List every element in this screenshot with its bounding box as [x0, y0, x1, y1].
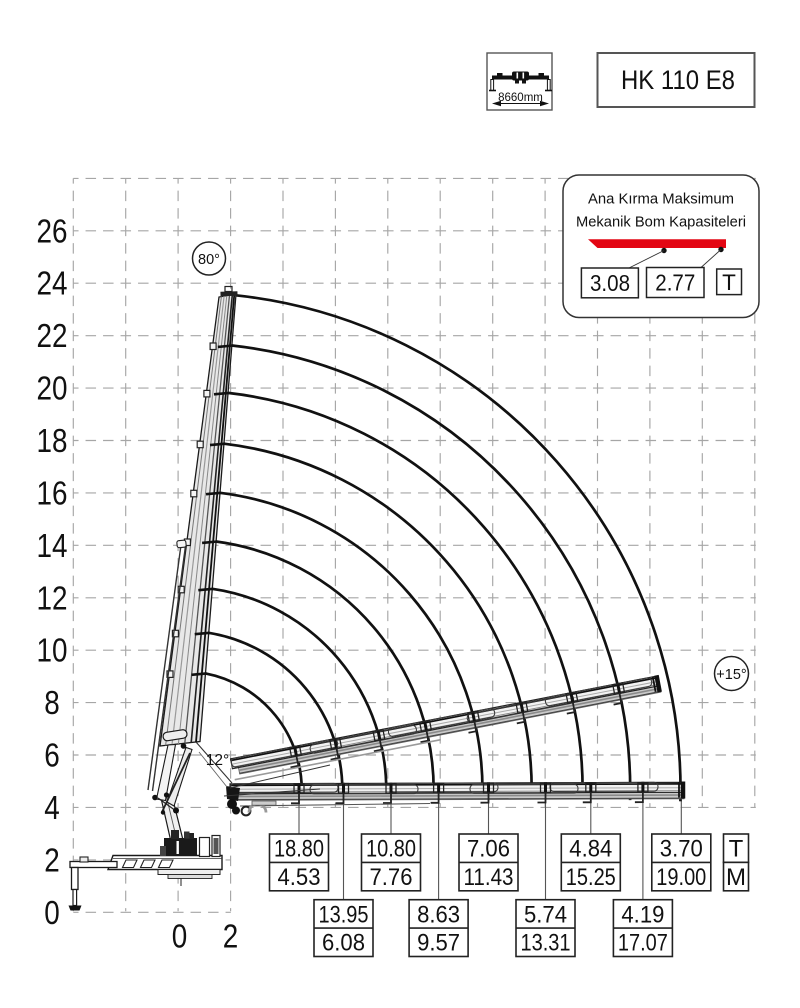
svg-text:13.31: 13.31: [521, 930, 571, 957]
svg-text:3.70: 3.70: [660, 836, 703, 863]
svg-text:6.08: 6.08: [322, 930, 365, 957]
svg-text:12: 12: [37, 579, 68, 616]
svg-text:4.19: 4.19: [621, 901, 664, 928]
svg-text:8660mm: 8660mm: [498, 92, 543, 104]
svg-text:18.80: 18.80: [274, 836, 324, 863]
svg-text:T: T: [722, 270, 736, 295]
svg-text:10.80: 10.80: [366, 836, 416, 863]
svg-text:12°: 12°: [206, 752, 229, 769]
svg-text:M: M: [726, 864, 746, 891]
svg-text:Mekanik Bom Kapasiteleri: Mekanik Bom Kapasiteleri: [576, 214, 746, 231]
svg-text:0: 0: [172, 918, 188, 955]
svg-text:7.76: 7.76: [370, 864, 413, 891]
svg-text:Ana Kırma Maksimum: Ana Kırma Maksimum: [588, 191, 734, 208]
svg-text:20: 20: [37, 370, 68, 407]
svg-text:17.07: 17.07: [618, 930, 668, 957]
svg-text:19.00: 19.00: [656, 864, 706, 891]
svg-text:9.57: 9.57: [417, 930, 460, 957]
svg-text:2: 2: [44, 841, 60, 878]
svg-text:22: 22: [37, 317, 68, 354]
svg-text:+15°: +15°: [716, 667, 746, 683]
svg-text:5.74: 5.74: [524, 901, 567, 928]
svg-text:6: 6: [44, 737, 60, 774]
svg-text:8.63: 8.63: [417, 901, 460, 928]
svg-text:7.06: 7.06: [467, 836, 510, 863]
svg-text:0: 0: [44, 894, 60, 931]
svg-text:4.84: 4.84: [569, 836, 612, 863]
svg-text:26: 26: [37, 212, 68, 249]
svg-text:24: 24: [37, 265, 68, 302]
svg-text:2.77: 2.77: [655, 270, 695, 296]
svg-text:8: 8: [44, 684, 60, 721]
svg-text:4.53: 4.53: [278, 864, 321, 891]
svg-text:16: 16: [37, 474, 68, 511]
svg-text:10: 10: [37, 632, 68, 669]
svg-text:HK 110 E8: HK 110 E8: [621, 65, 735, 95]
svg-text:11.43: 11.43: [464, 864, 514, 891]
svg-text:4: 4: [44, 789, 60, 826]
svg-text:13.95: 13.95: [319, 901, 369, 928]
svg-text:2: 2: [223, 918, 239, 955]
svg-text:14: 14: [37, 527, 68, 564]
svg-text:18: 18: [37, 422, 68, 459]
svg-text:80°: 80°: [198, 252, 220, 268]
svg-text:T: T: [729, 836, 744, 863]
svg-text:3.08: 3.08: [590, 270, 630, 296]
svg-text:15.25: 15.25: [566, 864, 616, 891]
